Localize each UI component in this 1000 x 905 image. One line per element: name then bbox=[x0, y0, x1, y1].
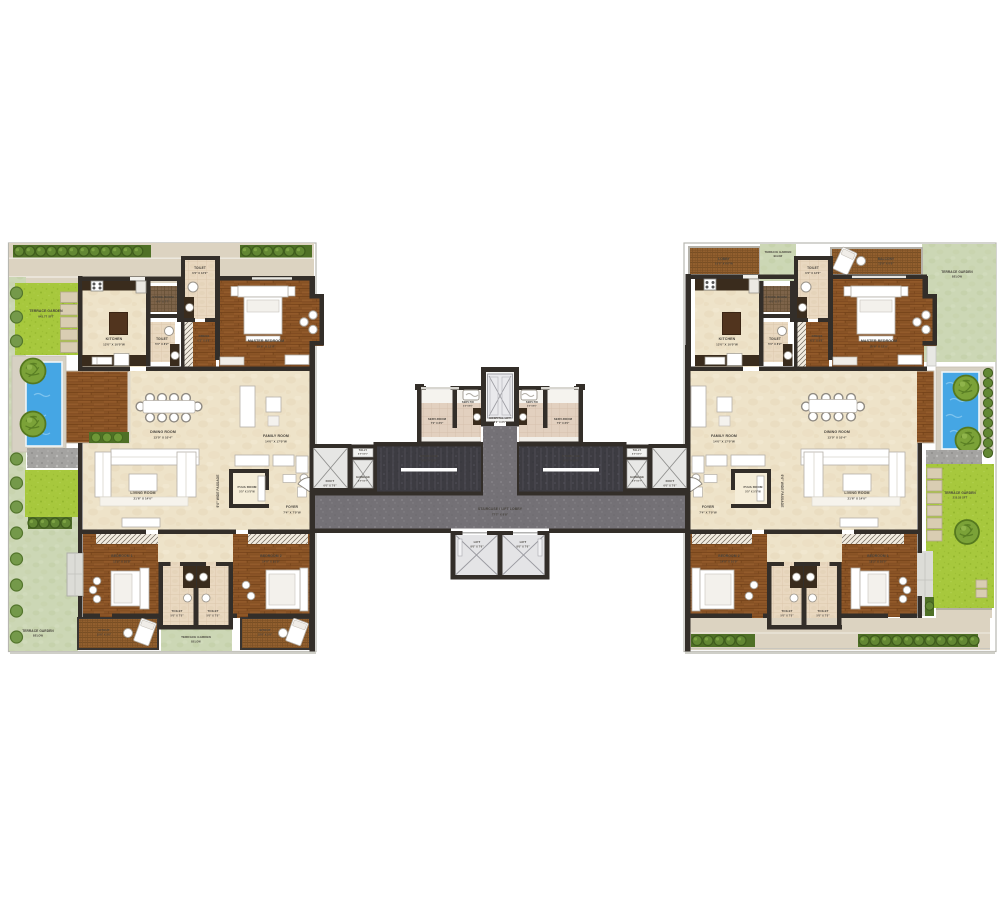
svg-text:TOILET: TOILET bbox=[207, 609, 218, 613]
svg-text:12'0″ X 10'0″W: 12'0″ X 10'0″W bbox=[103, 343, 125, 347]
svg-text:12'2″ X 10'0″: 12'2″ X 10'0″ bbox=[869, 560, 887, 564]
svg-text:10'0″ X 6'0″W: 10'0″ X 6'0″W bbox=[715, 262, 733, 266]
svg-text:DUCT: DUCT bbox=[326, 479, 335, 483]
svg-text:TOILET: TOILET bbox=[781, 609, 792, 613]
svg-text:5'0″ X 7'5″: 5'0″ X 7'5″ bbox=[170, 614, 184, 617]
svg-text:4'0″X8'6″: 4'0″X8'6″ bbox=[463, 405, 473, 408]
svg-text:SERV.ROOM: SERV.ROOM bbox=[554, 417, 573, 421]
svg-text:GARBAGE: GARBAGE bbox=[630, 475, 644, 479]
svg-text:21'6″ X 14'0″: 21'6″ X 14'0″ bbox=[134, 497, 153, 501]
svg-text:13'0″ X 10'4″: 13'0″ X 10'4″ bbox=[154, 436, 173, 440]
svg-text:SERV.ROOM: SERV.ROOM bbox=[428, 417, 447, 421]
svg-text:8'0″ X 7'0″: 8'0″ X 7'0″ bbox=[516, 545, 530, 548]
svg-text:5'0″ X 7'5″: 5'0″ X 7'5″ bbox=[780, 614, 794, 617]
svg-text:LIFT: LIFT bbox=[520, 540, 527, 544]
svg-text:BEDROOM 2: BEDROOM 2 bbox=[718, 554, 739, 558]
svg-text:7'4″ X 7'0″W: 7'4″ X 7'0″W bbox=[283, 511, 301, 515]
svg-text:5'0″ X 7'5″: 5'0″ X 7'5″ bbox=[816, 614, 830, 617]
svg-text:KITCHEN: KITCHEN bbox=[106, 337, 123, 341]
svg-text:TERRACE GARDEN: TERRACE GARDEN bbox=[22, 629, 54, 633]
svg-text:HOSPITAL LIFT: HOSPITAL LIFT bbox=[489, 416, 511, 420]
svg-text:STAIRCASE: STAIRCASE bbox=[420, 454, 438, 458]
svg-text:SITOUT: SITOUT bbox=[98, 628, 110, 632]
svg-text:12'0″ X 10'0″W: 12'0″ X 10'0″W bbox=[716, 343, 738, 347]
svg-text:STORE ROOM: STORE ROOM bbox=[765, 295, 787, 299]
svg-text:15'6″ X 12'0″: 15'6″ X 12'0″ bbox=[257, 345, 276, 349]
svg-text:TERRACE GARDEN: TERRACE GARDEN bbox=[944, 491, 976, 495]
svg-text:21'6″ X 14'0″: 21'6″ X 14'0″ bbox=[848, 497, 867, 501]
svg-text:5'5″ X 5'5″W: 5'5″ X 5'5″W bbox=[239, 490, 255, 493]
svg-text:DINING ROOM: DINING ROOM bbox=[150, 430, 176, 434]
svg-text:STAIRCASE / LIFT LOBBY: STAIRCASE / LIFT LOBBY bbox=[478, 507, 523, 511]
svg-text:DUCT: DUCT bbox=[666, 479, 675, 483]
svg-text:TERRACE GARDEN: TERRACE GARDEN bbox=[765, 250, 792, 254]
svg-text:SERV.TOI: SERV.TOI bbox=[526, 401, 538, 404]
svg-text:10'0″ X 5'0″: 10'0″ X 5'0″ bbox=[97, 633, 112, 636]
svg-text:6'0″ X 7'0″: 6'0″ X 7'0″ bbox=[663, 484, 677, 487]
svg-text:77'7″ X 8'8″: 77'7″ X 8'8″ bbox=[492, 513, 509, 517]
svg-text:TOILET: TOILET bbox=[817, 609, 828, 613]
svg-text:6'0″ X 7'0″: 6'0″ X 7'0″ bbox=[323, 484, 337, 487]
svg-text:BALCONY: BALCONY bbox=[878, 257, 895, 261]
svg-text:6'3″ X 8'0″: 6'3″ X 8'0″ bbox=[810, 339, 824, 342]
svg-text:DRESS: DRESS bbox=[812, 334, 823, 338]
svg-text:6'0″ X 12'0″: 6'0″ X 12'0″ bbox=[192, 271, 208, 275]
svg-text:TOILET: TOILET bbox=[171, 609, 182, 613]
svg-text:16'8″ X 11'0″: 16'8″ X 11'0″ bbox=[563, 459, 580, 462]
svg-text:210.25 SFT: 210.25 SFT bbox=[953, 496, 968, 500]
svg-text:5'0″ X 8'2″: 5'0″ X 8'2″ bbox=[768, 342, 782, 346]
svg-text:7'0″ X 8'0″: 7'0″ X 8'0″ bbox=[557, 422, 570, 425]
svg-text:4'0″X3'7″: 4'0″X3'7″ bbox=[632, 480, 642, 483]
svg-text:14'0″ X 10'0″: 14'0″ X 10'0″ bbox=[720, 560, 738, 564]
svg-text:5'0″ X 8'2″: 5'0″ X 8'2″ bbox=[155, 342, 169, 346]
svg-text:943.77 SFT: 943.77 SFT bbox=[38, 315, 54, 319]
svg-text:TERRACE GARDEN: TERRACE GARDEN bbox=[181, 635, 211, 639]
svg-text:PUJA ROOM: PUJA ROOM bbox=[744, 485, 763, 489]
svg-text:MASTER BEDROOM: MASTER BEDROOM bbox=[861, 339, 897, 343]
svg-text:TALLY: TALLY bbox=[633, 448, 642, 452]
svg-text:TOILET: TOILET bbox=[156, 337, 168, 341]
svg-text:9'0″ WIDE PASSAGE: 9'0″ WIDE PASSAGE bbox=[780, 475, 784, 508]
svg-text:6'0″ X 7'7″: 6'0″ X 7'7″ bbox=[769, 301, 783, 304]
svg-text:13'0″ X 10'4″: 13'0″ X 10'4″ bbox=[828, 436, 847, 440]
svg-text:TERRACE GARDEN: TERRACE GARDEN bbox=[941, 270, 973, 274]
svg-text:4'0″X3'7″: 4'0″X3'7″ bbox=[358, 480, 368, 483]
svg-text:BELOW: BELOW bbox=[191, 640, 201, 643]
svg-text:10'0″ X 5'0″: 10'0″ X 5'0″ bbox=[258, 633, 273, 636]
svg-text:4'0″X3'0″: 4'0″X3'0″ bbox=[358, 453, 368, 456]
svg-text:BELOW: BELOW bbox=[774, 256, 784, 258]
svg-text:STAIRCASE: STAIRCASE bbox=[562, 454, 580, 458]
svg-text:TOILET: TOILET bbox=[194, 266, 206, 270]
svg-text:SITOUT: SITOUT bbox=[259, 628, 271, 632]
svg-text:TALLY: TALLY bbox=[359, 448, 368, 452]
svg-text:BELOW: BELOW bbox=[952, 275, 963, 279]
svg-text:BEDROOM 2: BEDROOM 2 bbox=[260, 554, 281, 558]
svg-text:7'0″ X 8'0″: 7'0″ X 8'0″ bbox=[431, 422, 444, 425]
svg-text:BEDROOM 1: BEDROOM 1 bbox=[111, 554, 132, 558]
svg-text:16'8″ X 11'0″: 16'8″ X 11'0″ bbox=[421, 459, 438, 462]
svg-text:14'0″ X 17'0″W: 14'0″ X 17'0″W bbox=[713, 440, 735, 444]
svg-text:GARBAGE: GARBAGE bbox=[356, 475, 370, 479]
svg-text:13'0″ X 6'0″: 13'0″ X 6'0″ bbox=[878, 262, 894, 266]
svg-text:TERRACE GARDEN: TERRACE GARDEN bbox=[29, 309, 63, 313]
svg-text:FAMILY ROOM: FAMILY ROOM bbox=[711, 434, 737, 438]
svg-text:FAMILY ROOM: FAMILY ROOM bbox=[263, 434, 289, 438]
svg-text:MASTER BEDROOM: MASTER BEDROOM bbox=[248, 339, 284, 343]
svg-text:5'5″ X 5'5″W: 5'5″ X 5'5″W bbox=[745, 490, 761, 493]
svg-text:15'6″ X 12'0″: 15'6″ X 12'0″ bbox=[870, 345, 889, 349]
svg-text:FOYER: FOYER bbox=[702, 505, 715, 509]
svg-text:8'0″ X 8'0″: 8'0″ X 8'0″ bbox=[494, 422, 507, 424]
svg-text:LIVING ROOM: LIVING ROOM bbox=[130, 491, 155, 495]
svg-text:14'0″ X 17'0″W: 14'0″ X 17'0″W bbox=[265, 440, 287, 444]
svg-text:6'0″ X 12'0″: 6'0″ X 12'0″ bbox=[805, 271, 821, 275]
svg-text:6'0″ X 7'7″: 6'0″ X 7'7″ bbox=[156, 301, 170, 304]
svg-text:12'2″ X 10'0″: 12'2″ X 10'0″ bbox=[113, 560, 131, 564]
svg-text:DINING ROOM: DINING ROOM bbox=[824, 430, 850, 434]
svg-text:TOILET: TOILET bbox=[769, 337, 781, 341]
svg-text:STORE ROOM: STORE ROOM bbox=[152, 295, 174, 299]
svg-text:4'0″X3'0″: 4'0″X3'0″ bbox=[632, 453, 642, 456]
svg-text:5'0″ X 7'5″: 5'0″ X 7'5″ bbox=[206, 614, 220, 617]
svg-text:PUJA ROOM: PUJA ROOM bbox=[238, 485, 257, 489]
svg-text:SERV.TOI: SERV.TOI bbox=[462, 401, 474, 404]
svg-text:8'0″ X 7'0″: 8'0″ X 7'0″ bbox=[470, 545, 484, 548]
svg-text:6'3″ X 8'0″: 6'3″ X 8'0″ bbox=[197, 339, 211, 342]
svg-text:7'4″ X 7'0″W: 7'4″ X 7'0″W bbox=[699, 511, 717, 515]
svg-text:9'0″ WIDE PASSAGE: 9'0″ WIDE PASSAGE bbox=[216, 475, 220, 508]
svg-text:DRESS: DRESS bbox=[199, 334, 210, 338]
svg-text:14'0″ X 10'0″: 14'0″ X 10'0″ bbox=[262, 560, 280, 564]
svg-text:TOILET: TOILET bbox=[807, 266, 819, 270]
svg-text:LOBBY: LOBBY bbox=[718, 257, 730, 261]
svg-text:LIVING ROOM: LIVING ROOM bbox=[844, 491, 869, 495]
svg-text:BEDROOM 1: BEDROOM 1 bbox=[867, 554, 888, 558]
svg-text:4'0″X8'6″: 4'0″X8'6″ bbox=[527, 405, 537, 408]
svg-text:FOYER: FOYER bbox=[286, 505, 299, 509]
svg-text:BELOW: BELOW bbox=[33, 634, 44, 638]
svg-text:LIFT: LIFT bbox=[474, 540, 481, 544]
svg-text:KITCHEN: KITCHEN bbox=[719, 337, 736, 341]
